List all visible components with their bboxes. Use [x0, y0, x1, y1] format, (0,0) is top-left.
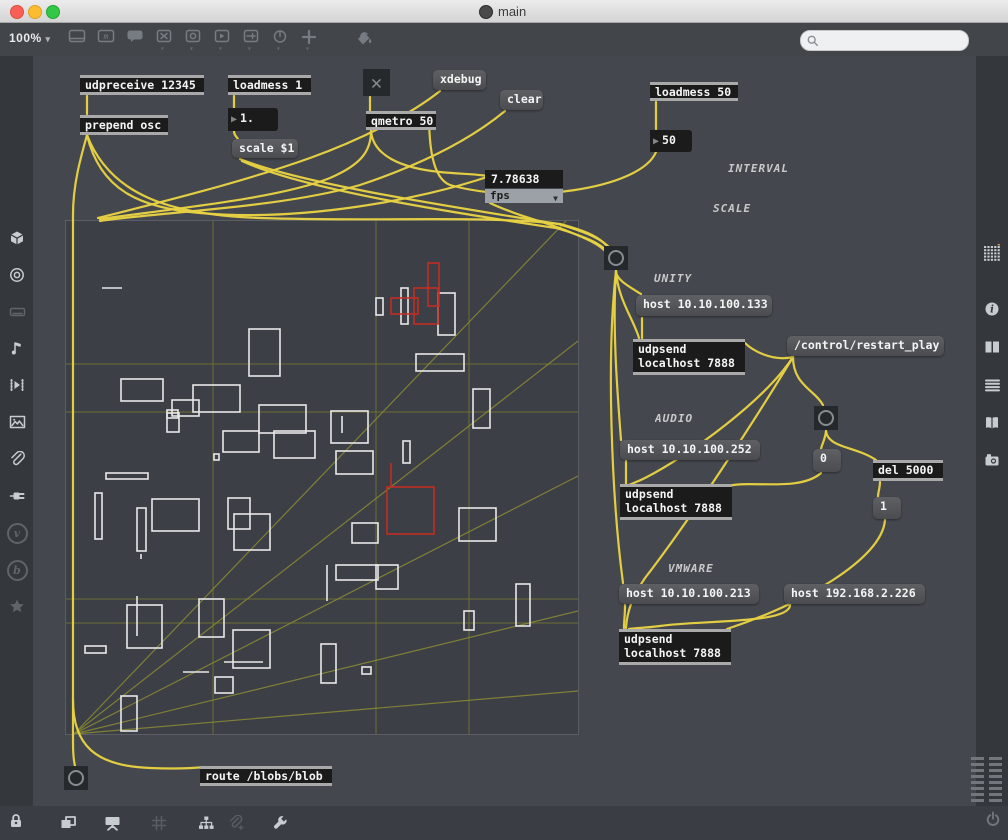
blob-rect [137, 508, 146, 551]
wrench-icon[interactable] [268, 811, 292, 835]
interval-comment: INTERVAL [728, 162, 798, 176]
svg-text:i: i [990, 305, 994, 316]
chevron-down-icon: ▼ [553, 192, 558, 203]
left-sidebar: vb [0, 56, 33, 806]
patch-cord [616, 271, 641, 294]
patch-cord [611, 271, 623, 583]
right-sidebar: i [976, 56, 1008, 806]
prepend-osc-object[interactable]: prepend osc [80, 115, 168, 135]
blob-rect [106, 473, 148, 479]
info-icon[interactable]: i [980, 297, 1004, 321]
blob-rect [152, 499, 199, 531]
reference-icon[interactable] [980, 411, 1004, 435]
vimeo-icon[interactable]: v [5, 521, 29, 545]
blob-rect [127, 605, 162, 648]
fps-number-display[interactable]: 7.78638 [485, 170, 563, 188]
blob-rect [336, 565, 378, 580]
blob-rect [416, 354, 464, 371]
blob-rect [95, 493, 102, 539]
blob-rect [121, 379, 163, 401]
loadmess-50-object[interactable]: loadmess 50 [650, 82, 738, 101]
zero-message[interactable]: 0 [813, 449, 841, 472]
plug-icon[interactable] [5, 484, 29, 508]
fps-menu[interactable]: fps▼ [485, 189, 563, 203]
bang-button-bottom[interactable] [64, 766, 88, 790]
patch-cord [629, 605, 790, 629]
blob-rect [403, 441, 410, 463]
blob-rect [473, 389, 490, 428]
image-icon[interactable] [5, 410, 29, 434]
target-icon[interactable] [5, 263, 29, 287]
blob-rect [121, 696, 137, 731]
lock-patcher-button[interactable] [8, 813, 24, 833]
patch-cord [615, 271, 621, 440]
blob-rect [376, 298, 383, 315]
patch-cord [745, 343, 793, 358]
layers-icon[interactable] [56, 811, 80, 835]
scale-message[interactable]: scale $1 [232, 139, 298, 158]
paperclip-plus-icon[interactable] [224, 811, 248, 835]
blob-rect [438, 293, 455, 335]
qmetro-object[interactable]: qmetro 50 [366, 111, 436, 130]
vmware-comment: VMWARE [668, 562, 722, 576]
blob-rect [234, 514, 270, 550]
blob-rect [259, 405, 306, 433]
audio-level-meters [971, 756, 1002, 802]
grid-icon[interactable] [147, 811, 171, 835]
blob-rect [401, 288, 408, 324]
toggle-x[interactable]: ✕ [363, 69, 390, 96]
blob-rect [199, 599, 224, 637]
beap-icon[interactable]: b [5, 558, 29, 582]
udpsend-audio-object[interactable]: udpsend localhost 7888 [620, 484, 732, 520]
sequencer-icon[interactable] [5, 373, 29, 397]
music-note-icon[interactable] [5, 336, 29, 360]
blob-rect [274, 431, 315, 458]
udpsend-unity-object[interactable]: udpsend localhost 7888 [633, 339, 745, 375]
blob-rect [215, 677, 233, 693]
audio-comment: AUDIO [655, 412, 701, 426]
bang-button-main[interactable] [604, 246, 628, 270]
blob-rect [516, 584, 530, 626]
float-number-box[interactable]: ▶1. [228, 108, 278, 131]
patch-cord [878, 482, 880, 497]
meter-right [989, 756, 1002, 802]
patch-cord [793, 357, 823, 405]
blob-rect [214, 454, 219, 460]
meter-left [971, 756, 984, 802]
blob-rect-red [387, 487, 434, 534]
int-number-box[interactable]: ▶50 [650, 130, 692, 152]
host-unity-message[interactable]: host 10.10.100.133 [636, 295, 772, 316]
audio-power-button[interactable] [985, 811, 1001, 832]
max-patcher-window: main 100% ▾ m udpreceive 12345prepend os… [0, 0, 1008, 840]
jitter-preview-window [65, 220, 579, 735]
one-message[interactable]: 1 [873, 497, 901, 519]
blob-rect [193, 385, 240, 412]
patch-cord [624, 605, 625, 628]
blob-rect [223, 431, 259, 452]
patch-cord [727, 520, 885, 629]
bang-button-audio[interactable] [814, 406, 838, 430]
snapshot-icon[interactable] [980, 448, 1004, 472]
unity-comment: UNITY [654, 272, 700, 286]
patch-cord [728, 473, 821, 486]
inspector-icon[interactable] [980, 335, 1004, 359]
blob-rect [331, 411, 368, 443]
host-vmware2-message[interactable]: host 192.168.2.226 [784, 584, 925, 604]
blob-rect [249, 329, 280, 376]
loadmess-1-object[interactable]: loadmess 1 [228, 75, 311, 95]
udpreceive-object[interactable]: udpreceive 12345 [80, 75, 204, 95]
clear-message[interactable]: clear [500, 90, 543, 110]
blob-rect [376, 565, 398, 589]
blob-rect [459, 508, 496, 541]
host-vmware-message[interactable]: host 10.10.100.213 [619, 584, 759, 604]
console-icon[interactable] [980, 373, 1004, 397]
patch-cord [234, 131, 238, 139]
scale-comment: SCALE [713, 202, 763, 216]
blob-rect [85, 646, 106, 653]
patch-cord [627, 357, 793, 486]
patcher-canvas-area: udpreceive 12345prepend oscloadmess 1▶1.… [0, 0, 1008, 840]
object-browser-icon[interactable] [980, 241, 1004, 265]
blob-rect [321, 644, 336, 683]
star-icon[interactable] [5, 594, 29, 618]
patch-cord [371, 131, 488, 176]
paperclip-icon[interactable] [5, 447, 29, 471]
bottom-toolbar [0, 806, 1008, 840]
host-audio-message[interactable]: host 10.10.100.252 [620, 440, 760, 460]
blob-rect [362, 667, 371, 674]
cube-icon[interactable] [5, 226, 29, 250]
presentation-icon[interactable] [100, 811, 124, 835]
udpsend-vmware-object[interactable]: udpsend localhost 7888 [619, 629, 731, 665]
blob-rect [352, 523, 378, 543]
restart-play-message[interactable]: /control/restart_play [787, 336, 944, 356]
xdebug-message[interactable]: xdebug [433, 70, 486, 90]
hierarchy-icon[interactable] [194, 811, 218, 835]
route-blobs-object[interactable]: route /blobs/blob [200, 766, 332, 786]
patch-cord [821, 431, 826, 449]
keyboard-icon[interactable] [5, 300, 29, 324]
del-5000-object[interactable]: del 5000 [873, 460, 943, 481]
